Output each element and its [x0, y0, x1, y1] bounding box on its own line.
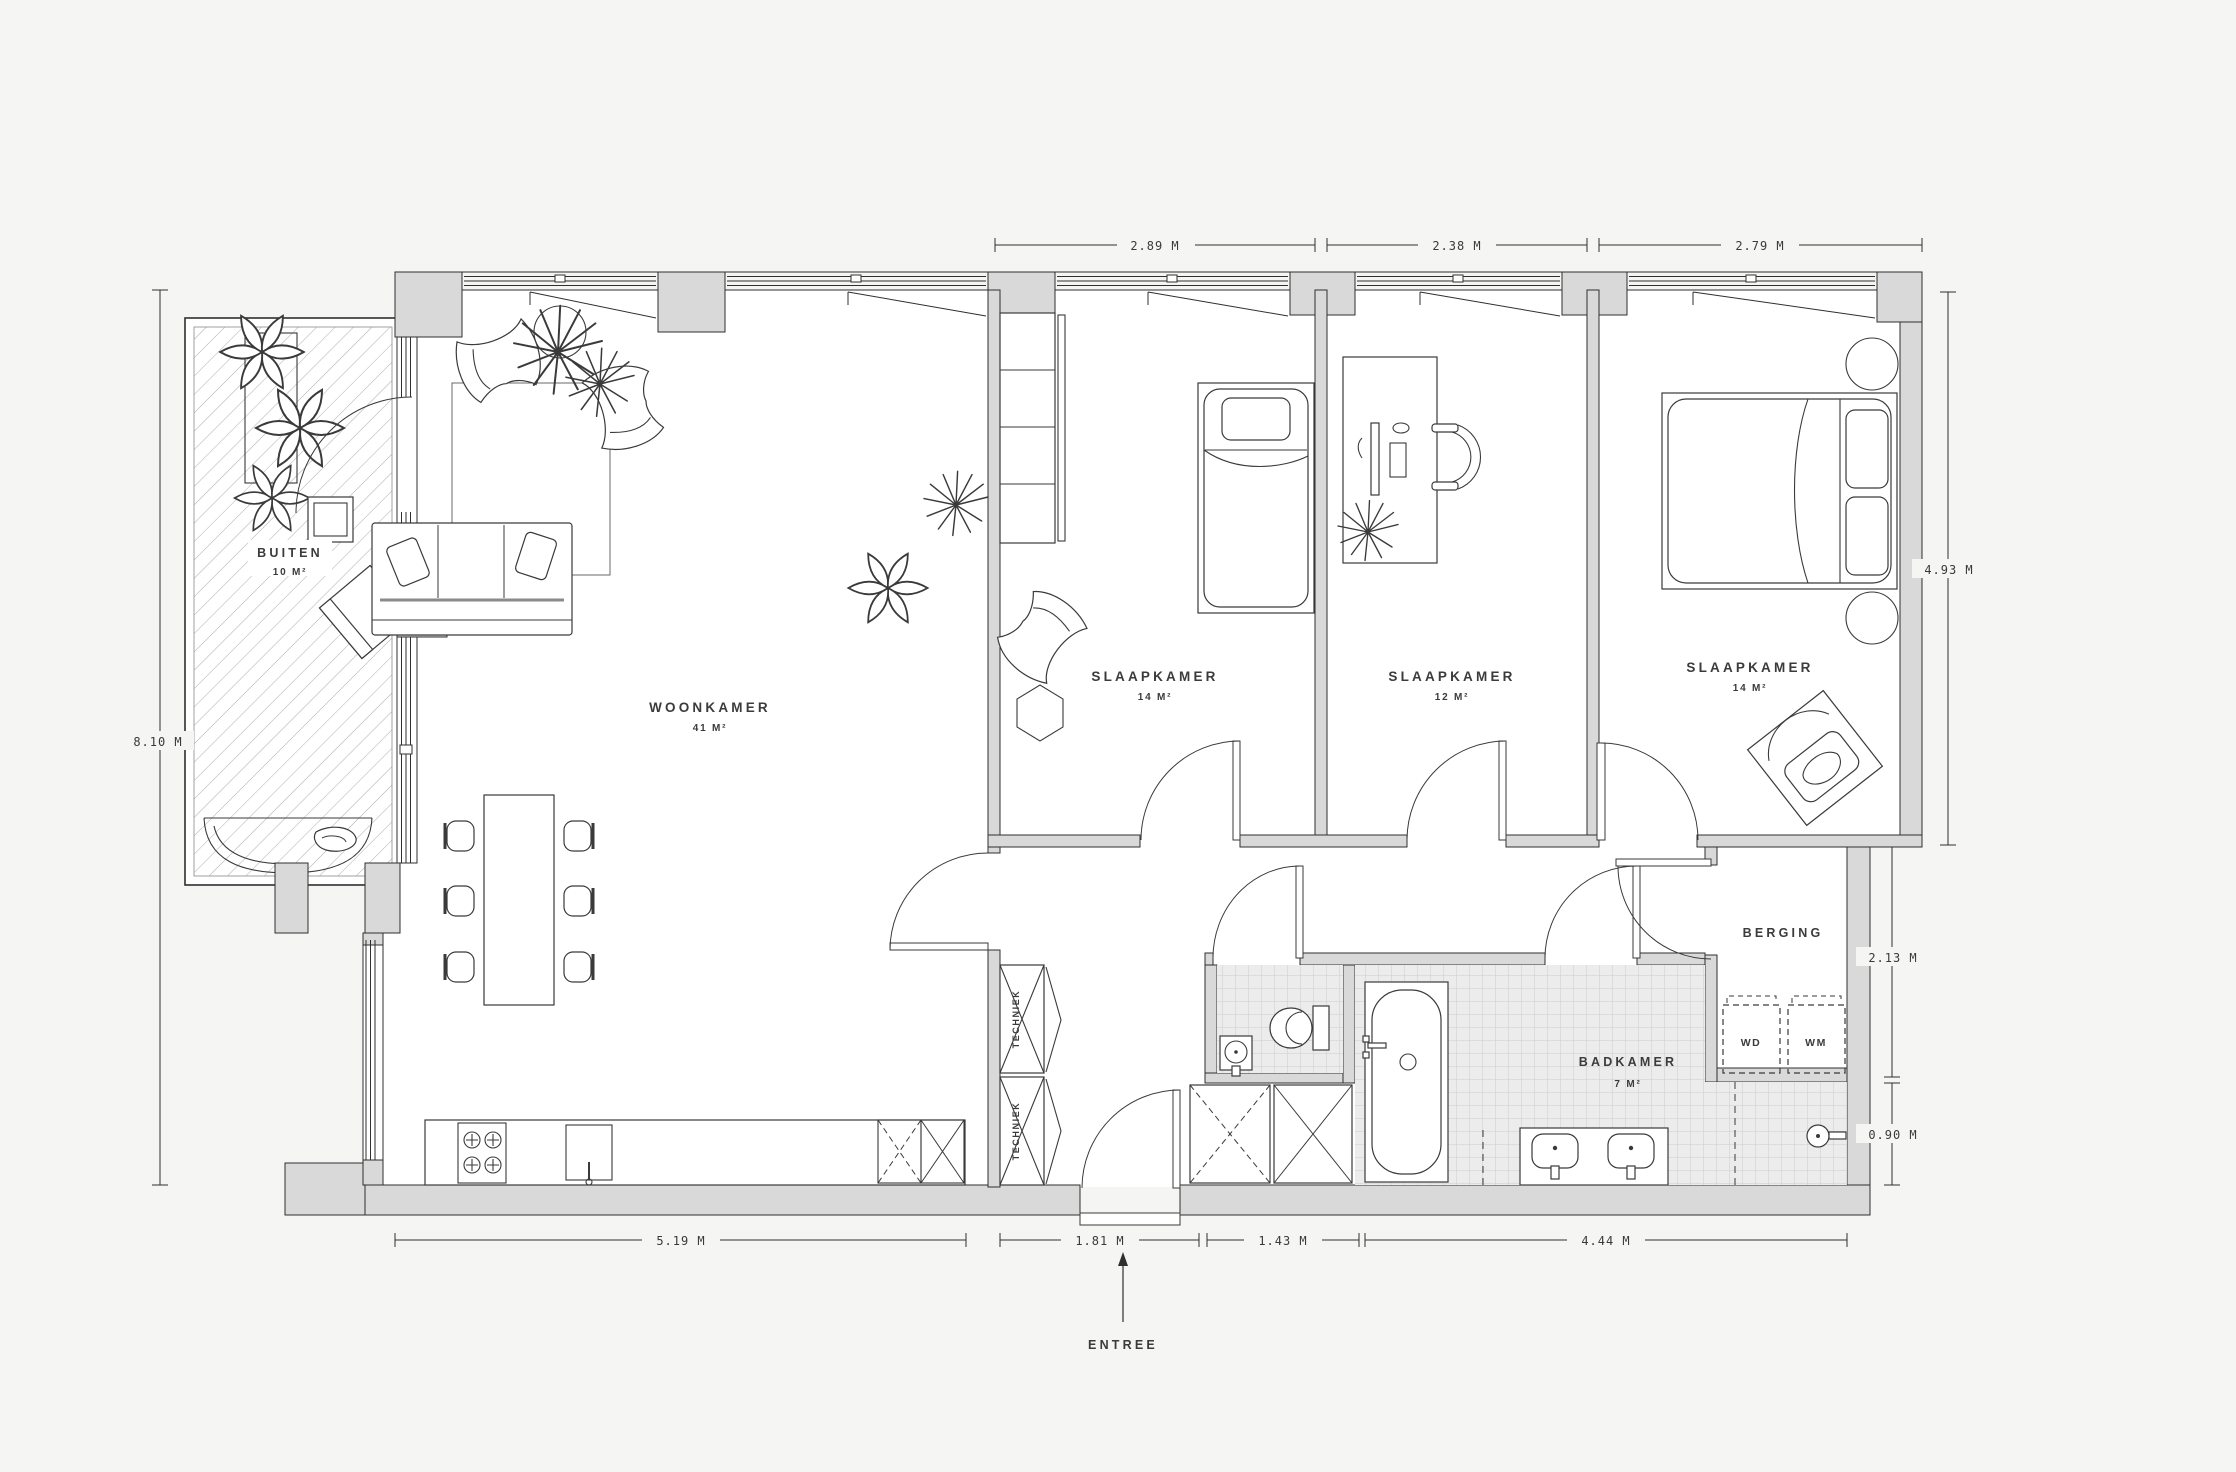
room-label-slaapkamer-1: SLAAPKAMER [1091, 669, 1218, 684]
dim-top-1: 2.89 M [1130, 239, 1179, 253]
room-label-techniek-upper: TECHNIEK [1011, 990, 1021, 1049]
room-label-techniek-lower: TECHNIEK [1011, 1102, 1021, 1161]
room-area-slaapkamer-2: 12 M² [1435, 692, 1470, 703]
kitchen-counter [425, 1120, 965, 1185]
bathtub-icon [1363, 982, 1448, 1182]
shelving-unit [1000, 313, 1065, 543]
washbasin-icon [1220, 1036, 1252, 1076]
appliance-label-wd: WD [1741, 1037, 1762, 1049]
desk [1343, 357, 1437, 563]
vanity-double-sink [1520, 1128, 1668, 1185]
dim-left-1: 8.10 M [133, 735, 182, 749]
toilet-icon [1270, 1006, 1329, 1050]
room-area-badkamer: 7 M² [1614, 1079, 1641, 1090]
double-bed [1662, 393, 1897, 589]
sofa [372, 523, 572, 635]
room-area-slaapkamer-3: 14 M² [1733, 683, 1768, 694]
floor-plan: BUITEN 10 M² [0, 0, 2236, 1472]
floor-plan-page: BUITEN 10 M² [0, 0, 2236, 1472]
room-label-slaapkamer-2: SLAAPKAMER [1388, 669, 1515, 684]
dim-top-2: 2.38 M [1432, 239, 1481, 253]
dim-right-1: 4.93 M [1924, 563, 1973, 577]
room-area-buiten: 10 M² [273, 567, 308, 578]
appliance-label-wm: WM [1805, 1037, 1827, 1049]
room-label-slaapkamer-3: SLAAPKAMER [1686, 660, 1813, 675]
room-area-woonkamer: 41 M² [693, 723, 728, 734]
dim-bottom-3: 1.43 M [1258, 1234, 1307, 1248]
entrance-label: ENTREE [1088, 1338, 1158, 1352]
room-label-badkamer: BADKAMER [1579, 1055, 1678, 1069]
room-label-buiten: BUITEN [257, 546, 323, 560]
monitor-icon [1371, 423, 1379, 495]
dim-right-3: 0.90 M [1868, 1128, 1917, 1142]
dim-right-2: 2.13 M [1868, 951, 1917, 965]
dim-top-3: 2.79 M [1735, 239, 1784, 253]
dim-bottom-2: 1.81 M [1075, 1234, 1124, 1248]
dim-bottom-4: 4.44 M [1581, 1234, 1630, 1248]
dining-table-set [445, 795, 593, 1005]
room-label-woonkamer: WOONKAMER [649, 700, 771, 715]
room-label-berging: BERGING [1743, 926, 1824, 940]
room-area-slaapkamer-1: 14 M² [1138, 692, 1173, 703]
balcony-side-table [308, 497, 353, 542]
single-bed [1198, 383, 1314, 613]
dim-bottom-1: 5.19 M [656, 1234, 705, 1248]
